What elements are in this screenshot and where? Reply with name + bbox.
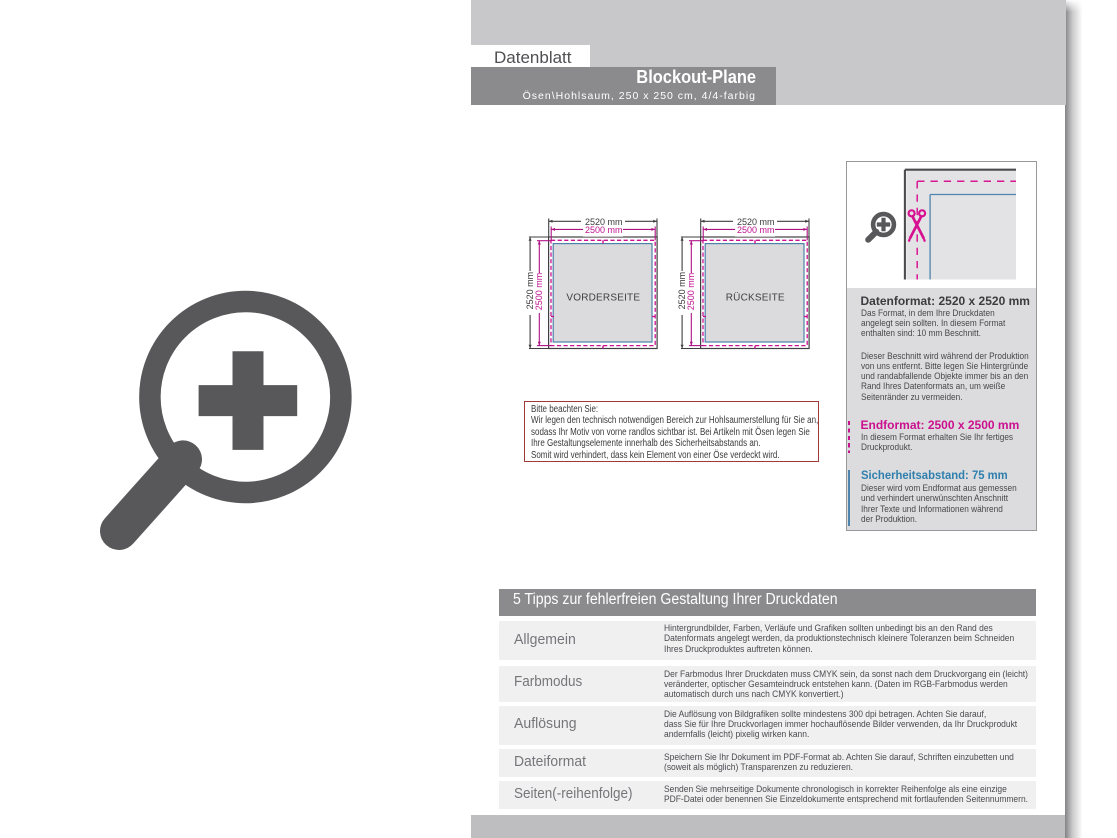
svg-text:2500 mm: 2500 mm [686, 273, 696, 311]
svg-text:2500 mm: 2500 mm [585, 225, 623, 235]
svg-text:VORDERSEITE: VORDERSEITE [566, 293, 640, 304]
svg-text:2500 mm: 2500 mm [737, 225, 775, 235]
svg-text:2500 mm: 2500 mm [534, 273, 544, 311]
svg-text:RÜCKSEITE: RÜCKSEITE [726, 292, 785, 304]
